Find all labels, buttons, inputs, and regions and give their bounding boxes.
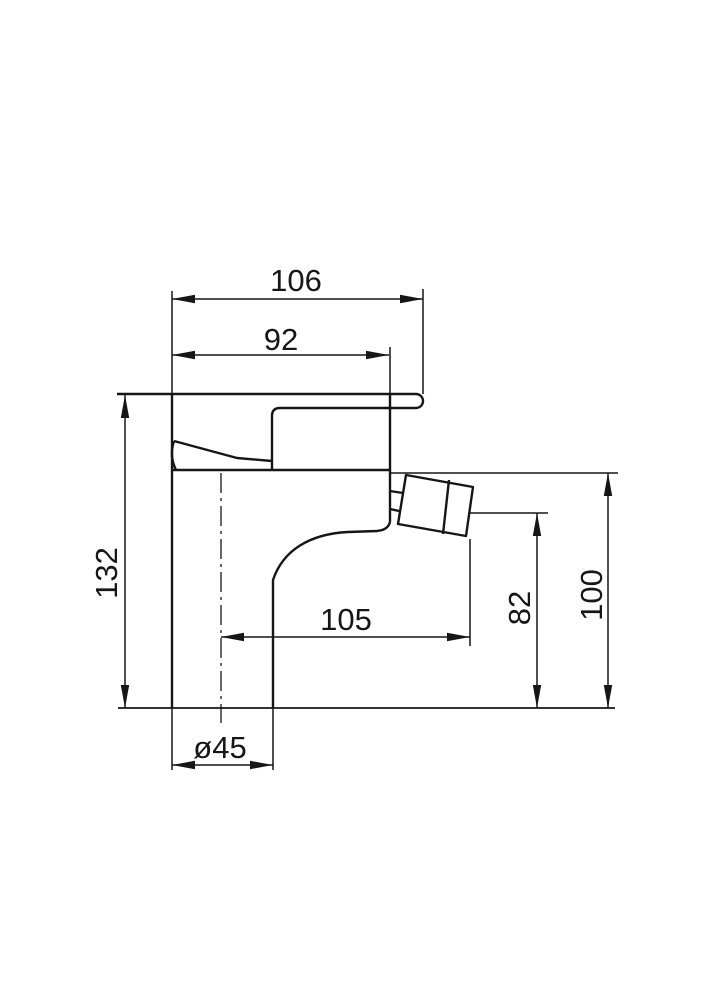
arrowhead-100-top — [604, 473, 612, 496]
arrowhead-92-left — [172, 351, 195, 359]
dimension-label-106: 106 — [270, 263, 322, 298]
arrowhead-45-left — [172, 761, 195, 769]
aerator-divider — [443, 480, 449, 534]
dimension-132: 132 — [89, 395, 129, 708]
faucet-outline — [117, 291, 615, 770]
lever-top-edge — [174, 441, 272, 461]
arrowhead-82-top — [533, 513, 541, 536]
dimension-label-100: 100 — [574, 569, 609, 621]
dimension-92: 92 — [172, 322, 389, 359]
dimension-100: 100 — [390, 473, 618, 708]
dimension-diameter-45: ø45 — [172, 730, 273, 769]
technical-drawing: 106 92 132 105 — [0, 0, 707, 1000]
drawing-page: 106 92 132 105 — [0, 0, 707, 1000]
dimension-82: 82 — [470, 513, 548, 708]
arrowhead-132-bottom — [121, 685, 129, 708]
arrowhead-45-right — [250, 761, 273, 769]
dimension-105: 105 — [221, 539, 470, 646]
arrowhead-100-bottom — [604, 685, 612, 708]
arrowhead-106-right — [400, 295, 423, 303]
arrowhead-105-left — [221, 633, 244, 641]
dimension-label-105: 105 — [320, 602, 372, 637]
dimension-label-45: ø45 — [193, 730, 246, 765]
arrowhead-105-right — [447, 633, 470, 641]
arrowhead-106-left — [172, 295, 195, 303]
arrowhead-82-bottom — [533, 685, 541, 708]
aerator-body — [398, 475, 473, 536]
arrowhead-92-right — [366, 351, 389, 359]
arrowhead-132-top — [121, 395, 129, 418]
spout-plate-outline — [117, 394, 423, 470]
dimension-label-132: 132 — [89, 547, 124, 599]
dimension-label-82: 82 — [502, 591, 537, 625]
dimension-label-92: 92 — [264, 322, 298, 357]
